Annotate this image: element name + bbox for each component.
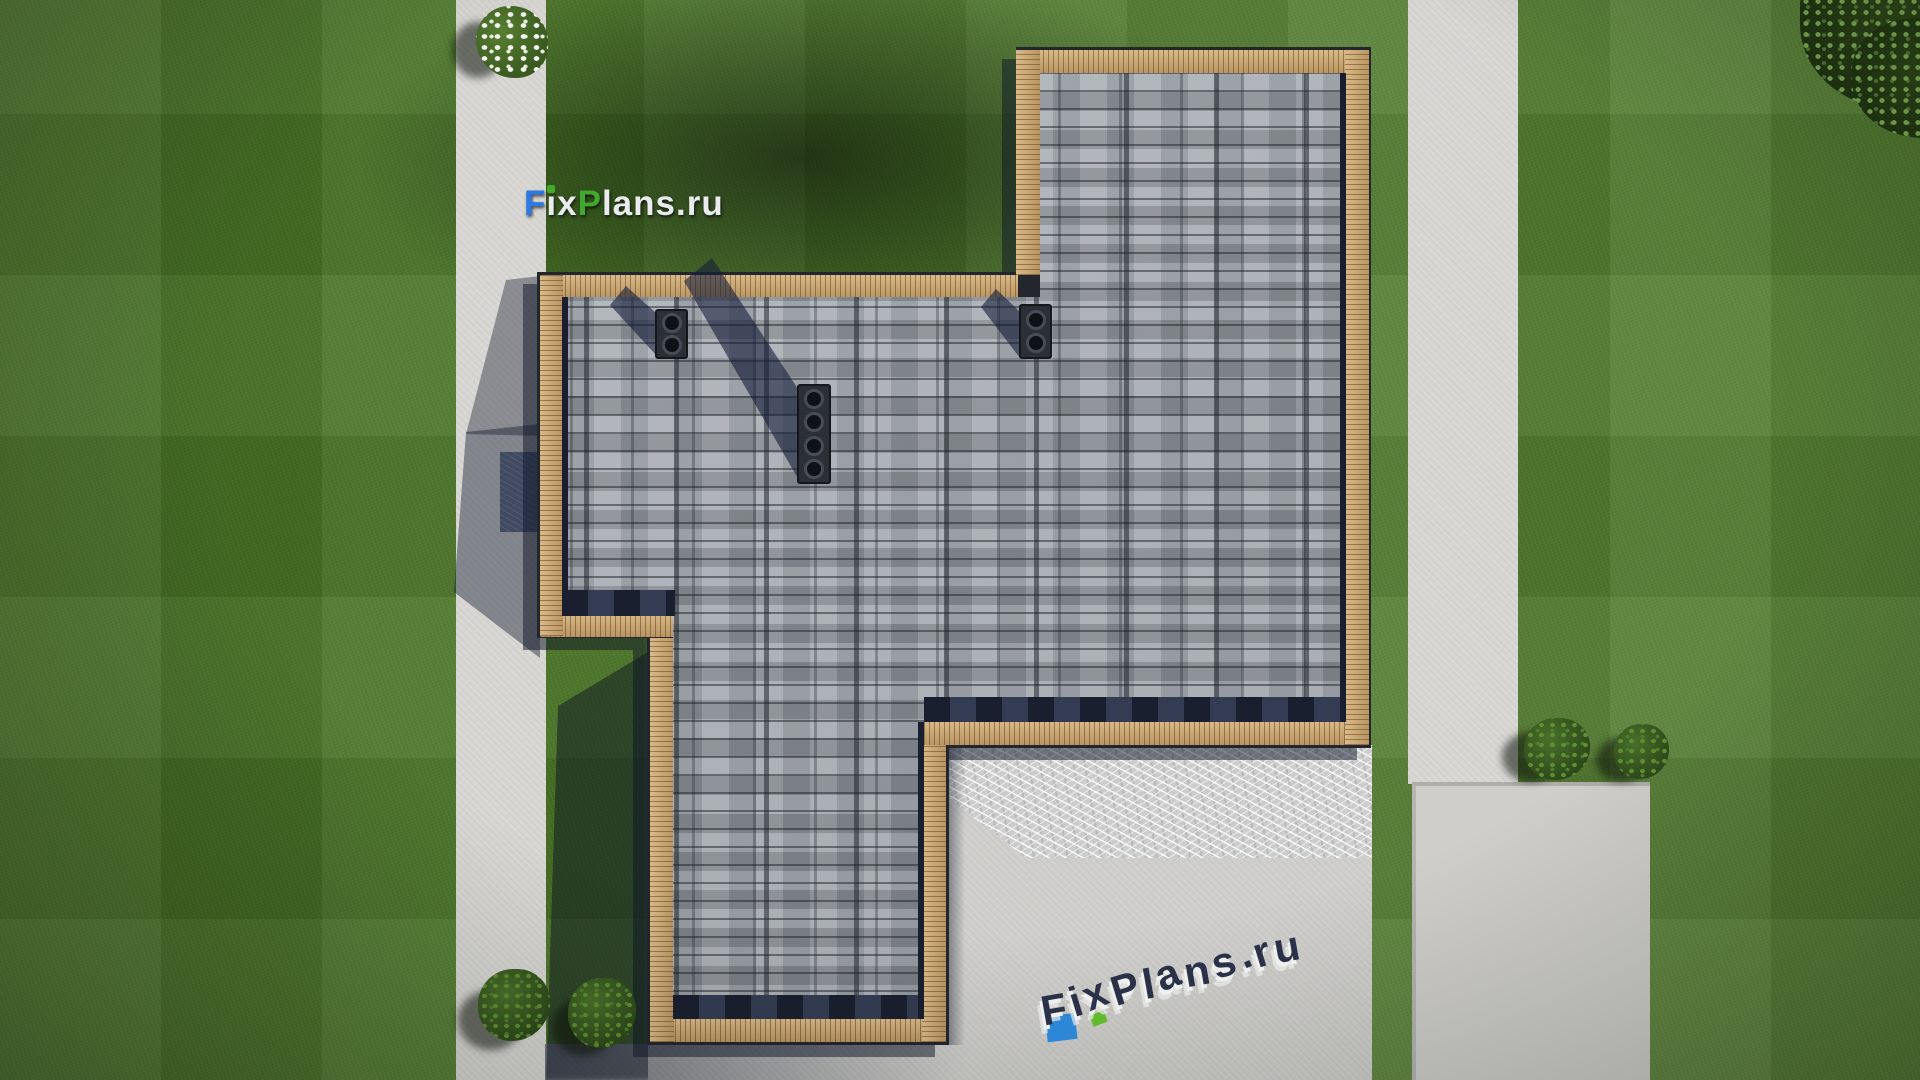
chimney-2 <box>1019 304 1052 359</box>
flower-bush <box>476 6 548 78</box>
chimney-3 <box>797 384 831 484</box>
chimney-vent-icon <box>804 459 824 479</box>
roof-trim-left-main <box>540 275 563 636</box>
eave-shadow-extension-right <box>918 722 924 1019</box>
chimney-vent-icon <box>1026 310 1046 330</box>
right-walkway <box>1408 0 1518 784</box>
right-concrete-pad <box>1412 782 1650 1080</box>
chimney-vent-icon <box>662 313 682 333</box>
eave-shadow-rightwing-bottom <box>924 697 1346 722</box>
logo-letter: F <box>524 184 546 223</box>
eave-shadow-extension-bottom <box>673 995 924 1019</box>
chimney-vent-icon <box>662 335 682 355</box>
logo-watermark: FixPlans.ru <box>524 184 724 224</box>
roof-trim-extension-left <box>650 638 674 1042</box>
shadow-on-terrace-edge <box>949 745 965 1045</box>
chimney-vent-icon <box>804 389 824 409</box>
roof-trim-rightwing-left <box>1016 50 1040 275</box>
eave-shadow-left <box>562 297 568 614</box>
eave-shadow-step <box>562 590 675 616</box>
aerial-house-render: FixPlans.ru FixPlans.ru <box>0 0 1920 1080</box>
roof-trim-extension-right <box>922 745 946 1042</box>
roof-trim-rightwing-bottom <box>924 721 1368 745</box>
roof-trim-extension-bottom <box>650 1018 946 1042</box>
logo-i-dot <box>547 185 555 193</box>
roof-trim-right-edge <box>1345 50 1369 745</box>
logo-letter: P <box>578 184 602 223</box>
logo-letter: lans.ru <box>602 184 724 223</box>
chimney-1 <box>655 309 688 359</box>
roof-trim-top-right-wing <box>1018 50 1368 74</box>
roof-trim-top-main <box>540 275 1018 298</box>
chimney-vent-icon <box>804 436 824 456</box>
eave-shadow-right <box>1340 73 1346 722</box>
chimney-vent-icon <box>804 412 824 432</box>
chimney-vent-icon <box>1026 333 1046 353</box>
shadow-on-terrace-strip <box>545 1044 965 1080</box>
